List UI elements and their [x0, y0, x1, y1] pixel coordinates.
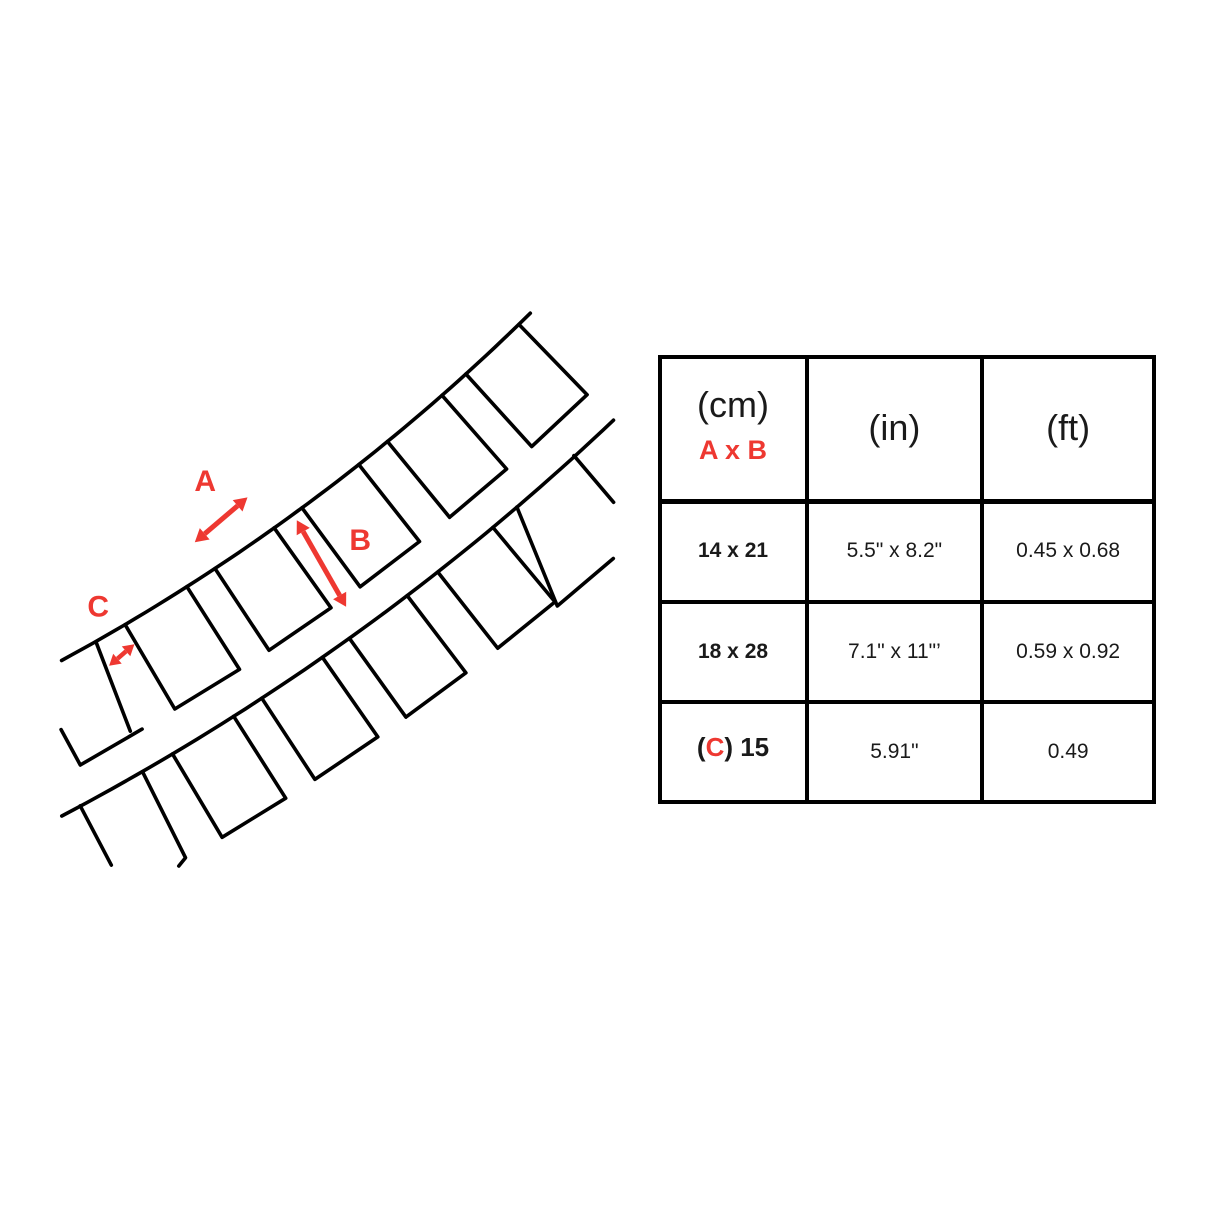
svg-text:A: A: [194, 465, 216, 498]
svg-text:C: C: [87, 590, 109, 623]
svg-text:B: B: [349, 524, 371, 557]
